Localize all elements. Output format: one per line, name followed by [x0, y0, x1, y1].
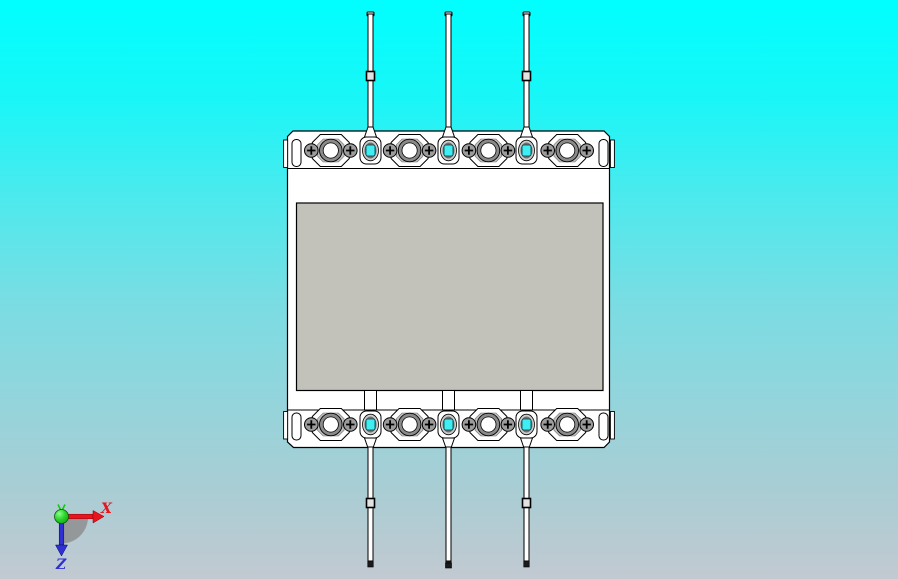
top-pins[interactable] — [365, 12, 533, 137]
terminal-block-model[interactable]: X Z — [0, 0, 898, 579]
flange-top-left — [284, 140, 288, 168]
pin-top-right[interactable] — [521, 12, 533, 137]
wire-connector-top-1[interactable] — [360, 137, 381, 164]
slot-top-left — [292, 140, 301, 167]
pin-bottom-left[interactable] — [365, 438, 377, 567]
flange-bottom-right — [610, 412, 614, 440]
slot-bottom-left — [292, 413, 301, 440]
pin-top-middle[interactable] — [443, 12, 455, 137]
panel-tab — [443, 391, 455, 411]
wire-connector-top-3[interactable] — [516, 137, 537, 164]
center-panel-face[interactable] — [297, 203, 604, 391]
x-axis-label: X — [100, 501, 113, 517]
panel-tab — [365, 391, 377, 411]
wire-connector-bottom-3[interactable] — [516, 411, 537, 438]
panel-tab — [521, 391, 533, 411]
pin-bottom-right[interactable] — [521, 438, 533, 567]
z-axis-label: Z — [55, 557, 67, 573]
flange-top-right — [610, 140, 614, 168]
bottom-pins[interactable] — [365, 438, 533, 568]
origin-ball — [55, 510, 69, 524]
orientation-triad: X Z — [55, 501, 114, 573]
slot-bottom-right — [599, 413, 608, 440]
pin-bottom-middle[interactable] — [443, 438, 455, 568]
flange-bottom-left — [284, 412, 288, 440]
slot-top-right — [599, 140, 608, 167]
cad-viewport[interactable]: X Z — [0, 0, 898, 579]
wire-connector-bottom-2[interactable] — [438, 411, 459, 438]
wire-connector-bottom-1[interactable] — [360, 411, 381, 438]
wire-connector-top-2[interactable] — [438, 137, 459, 164]
pin-top-left[interactable] — [365, 12, 377, 137]
